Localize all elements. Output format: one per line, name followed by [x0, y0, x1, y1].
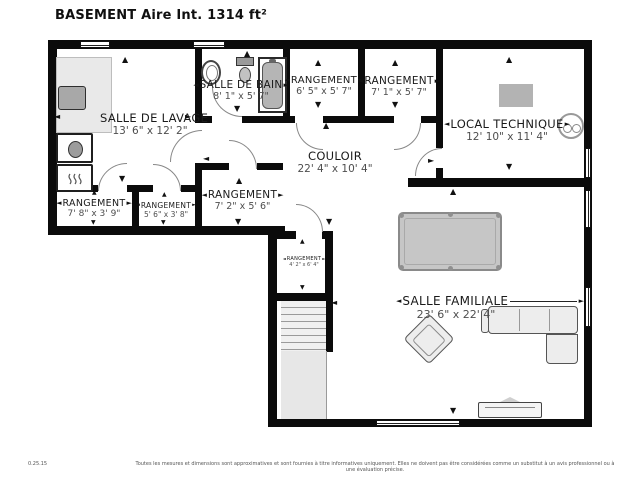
arrow-down-icon: ▼: [506, 163, 512, 171]
arrow-right-icon: ►: [428, 157, 434, 165]
window: [585, 287, 591, 327]
wall: [202, 163, 229, 170]
arrow-down-icon: ▼: [234, 105, 240, 113]
arrow-up-icon: ▲: [315, 59, 321, 67]
dryer: [56, 164, 93, 192]
arrow-down-icon: ▼: [235, 218, 241, 226]
wall: [276, 293, 333, 301]
arrow-up-icon: ▲: [244, 50, 250, 58]
arrow-left-icon: ◄: [54, 113, 60, 121]
arrow-right-icon: ►: [192, 203, 196, 208]
wall: [257, 163, 283, 170]
pool-table: [398, 212, 502, 271]
arrow-up-icon: ▲: [300, 239, 305, 245]
pool-pocket: [448, 212, 453, 217]
arrow-down-icon: ▼: [300, 285, 305, 291]
mechanical-equipment: [499, 84, 533, 107]
room-label-couloir: COULOIR 22' 4" x 10' 4": [290, 149, 380, 175]
arrow-right-icon: ►: [565, 121, 570, 128]
wall: [48, 40, 592, 49]
heat-waves-icon: [67, 171, 83, 185]
toilet-tank: [236, 57, 254, 66]
door-arc: [296, 123, 323, 150]
arrow-down-icon: ▼: [450, 407, 456, 415]
arrow-down-icon: ▼: [315, 101, 321, 109]
room-label-local-technique: ◄ LOCAL TECHNIQUE ► 12' 10" x 11' 4": [443, 117, 571, 143]
arrow-up-icon: ▲: [162, 192, 167, 198]
window: [193, 41, 225, 48]
stairs: [281, 301, 326, 351]
arrow-left-icon: ◄: [136, 203, 140, 208]
door-arc: [153, 164, 181, 191]
arrow-right-icon: ►: [579, 298, 584, 305]
wall: [181, 185, 202, 192]
arrow-left-icon: ◄: [331, 299, 337, 307]
wall: [242, 116, 295, 123]
room-label-rangement-3: ◄ RANGEMENT ► 7' 8" x 3' 9": [54, 198, 134, 219]
arrow-left-icon: ◄: [396, 298, 401, 305]
arrow-up-icon: ▲: [392, 59, 398, 67]
arrow-right-icon: ►: [127, 200, 132, 207]
door-arc: [394, 123, 421, 150]
wall: [276, 231, 296, 239]
arrow-right-icon: ►: [322, 257, 325, 261]
bathtub-faucet: [269, 59, 276, 63]
wall: [584, 40, 592, 427]
pool-pocket: [399, 213, 404, 218]
page-title: BASEMENT Aire Int. 1314 ft²: [55, 8, 267, 23]
arrow-left-icon: ◄: [203, 155, 209, 163]
pool-pocket: [448, 266, 453, 271]
room-label-rangement-5: ◄ RANGEMENT ► 7' 2" x 5' 6": [200, 189, 285, 212]
wall: [127, 185, 153, 192]
arrow-left-icon: ◄: [201, 192, 206, 199]
wall: [436, 48, 443, 148]
arrow-right-icon: ►: [185, 113, 191, 121]
disclaimer: Toutes les mesures et dimensions sont ap…: [135, 461, 615, 473]
version-label: 0.25.15: [28, 461, 47, 467]
room-label-rangement-2: ◄ RANGEMENT ► 7' 1" x 5' 7": [360, 75, 438, 98]
laundry-sink: [58, 86, 86, 110]
stair-landing: [281, 351, 326, 419]
arrow-down-icon: ▼: [392, 101, 398, 109]
pool-pocket: [399, 265, 404, 270]
arrow-down-icon: ▼: [119, 175, 125, 183]
arrow-right-icon: ►: [435, 78, 440, 85]
arrow-down-icon: ▼: [91, 220, 96, 226]
arrow-left-icon: ◄: [285, 77, 290, 84]
washer-door-icon: [68, 141, 83, 158]
wall: [421, 116, 443, 123]
arrow-right-icon: ►: [278, 192, 283, 199]
room-label-rangement-1: ◄ RANGEMENT ► 6' 5" x 5' 7": [288, 75, 360, 97]
room-label-salle-familiale: ◄ SALLE FAMILIALE ► 23' 6" x 22' 4": [396, 294, 584, 321]
wall: [48, 226, 285, 235]
room-label-rangement-6: ◄ RANGEMENT ► 4' 2" x 6' 4": [282, 256, 326, 268]
room-label-salle-de-bain: ◄ SALLE DE BAIN ► 8' 1" x 5' 7": [197, 79, 285, 102]
door-arc: [296, 204, 323, 232]
wall: [325, 231, 333, 352]
arrow-down-icon: ▼: [161, 220, 166, 226]
arrow-left-icon: ◄: [56, 200, 61, 207]
arrow-down-icon: ▼: [326, 218, 332, 226]
room-label-rangement-4: ◄ RANGEMENT ► 5' 6" x 3' 8": [137, 201, 195, 219]
arrow-left-icon: ◄: [444, 121, 449, 128]
window: [585, 190, 591, 228]
tv-console: [478, 402, 542, 418]
window: [585, 148, 591, 178]
sofa-chaise: [546, 334, 578, 364]
arrow-left-icon: ◄: [283, 257, 286, 261]
arrow-up-icon: ▲: [506, 56, 512, 64]
door-arc: [229, 140, 257, 169]
window: [80, 41, 110, 48]
window: [376, 420, 460, 426]
stair-landing-edge: [326, 351, 327, 419]
arrow-left-icon: ◄: [358, 78, 363, 85]
arrow-left-icon: ◄: [193, 82, 198, 89]
armchair: [404, 314, 455, 365]
arrow-up-icon: ▲: [450, 188, 456, 196]
pool-pocket: [496, 265, 501, 270]
arrow-up-icon: ▲: [323, 122, 329, 130]
arrow-up-icon: ▲: [92, 190, 97, 196]
arrow-up-icon: ▲: [122, 56, 128, 64]
wall: [408, 178, 588, 187]
arrow-up-icon: ▲: [236, 177, 242, 185]
wall: [268, 226, 277, 427]
washer: [56, 133, 93, 163]
pool-pocket: [496, 213, 501, 218]
floor-plan: BASEMENT Aire Int. 1314 ft²: [0, 0, 640, 480]
wall: [323, 116, 394, 123]
